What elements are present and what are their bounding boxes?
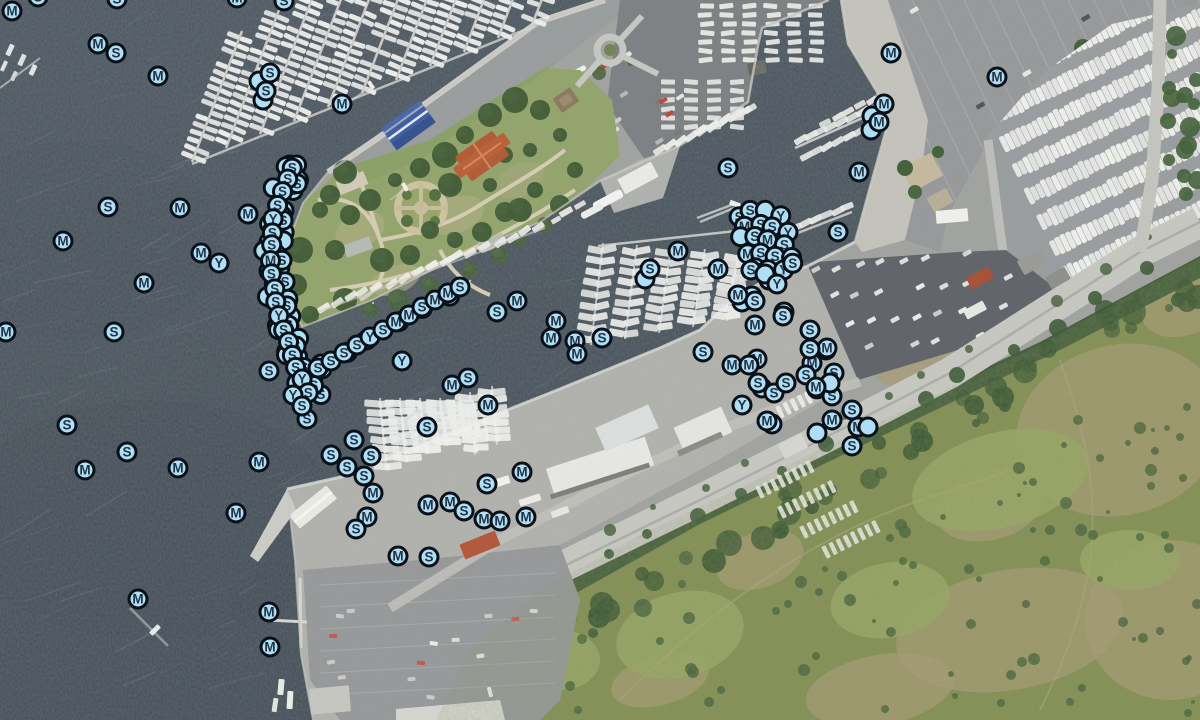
svg-text:M: M (444, 495, 455, 510)
svg-text:S: S (805, 323, 814, 338)
svg-text:M: M (138, 276, 149, 291)
svg-text:S: S (847, 403, 856, 418)
svg-text:S: S (112, 0, 121, 7)
svg-text:M: M (446, 378, 457, 393)
svg-text:M: M (826, 413, 837, 428)
svg-text:M: M (0, 325, 11, 340)
svg-text:Y: Y (772, 277, 781, 292)
svg-text:Y: Y (214, 256, 223, 271)
svg-text:S: S (750, 294, 759, 309)
svg-text:S: S (698, 345, 707, 360)
svg-text:S: S (723, 161, 732, 176)
svg-text:M: M (57, 234, 68, 249)
svg-text:S: S (297, 399, 306, 414)
svg-text:S: S (261, 84, 270, 99)
svg-text:S: S (781, 376, 790, 391)
svg-text:S: S (459, 504, 468, 519)
svg-text:M: M (520, 510, 531, 525)
svg-text:S: S (342, 460, 351, 475)
svg-text:S: S (847, 439, 856, 454)
svg-text:M: M (195, 246, 206, 261)
svg-text:S: S (33, 0, 42, 5)
svg-text:M: M (853, 165, 864, 180)
svg-text:M: M (263, 605, 274, 620)
svg-text:M: M (726, 358, 737, 373)
svg-text:M: M (264, 640, 275, 655)
svg-text:S: S (264, 364, 273, 379)
svg-text:M: M (511, 294, 522, 309)
svg-text:S: S (463, 371, 472, 386)
svg-text:M: M (550, 314, 561, 329)
svg-text:M: M (991, 70, 1002, 85)
svg-text:S: S (122, 445, 131, 460)
svg-text:S: S (351, 522, 360, 537)
svg-text:Y: Y (737, 398, 746, 413)
svg-text:S: S (753, 376, 762, 391)
svg-text:M: M (478, 512, 489, 527)
svg-text:M: M (132, 592, 143, 607)
svg-text:M: M (571, 347, 582, 362)
svg-text:M: M (494, 514, 505, 529)
svg-text:S: S (349, 433, 358, 448)
svg-text:M: M (545, 331, 556, 346)
svg-text:M: M (230, 506, 241, 521)
svg-text:M: M (336, 97, 347, 112)
svg-text:S: S (111, 46, 120, 61)
svg-text:M: M (732, 288, 743, 303)
svg-text:M: M (92, 37, 103, 52)
svg-text:M: M (6, 4, 17, 19)
svg-text:S: S (422, 420, 431, 435)
svg-text:S: S (746, 203, 755, 218)
svg-text:S: S (597, 331, 606, 346)
svg-text:S: S (109, 325, 118, 340)
svg-text:S: S (455, 280, 464, 295)
svg-text:M: M (79, 463, 90, 478)
svg-text:M: M (885, 46, 896, 61)
svg-text:M: M (821, 341, 832, 356)
svg-text:M: M (749, 318, 760, 333)
svg-text:Y: Y (397, 354, 406, 369)
svg-text:S: S (805, 342, 814, 357)
svg-text:S: S (746, 263, 755, 278)
svg-text:M: M (878, 97, 889, 112)
svg-text:M: M (242, 207, 253, 222)
svg-text:S: S (424, 550, 433, 565)
svg-text:M: M (873, 115, 884, 130)
svg-text:S: S (778, 309, 787, 324)
svg-text:M: M (516, 465, 527, 480)
svg-text:S: S (645, 262, 654, 277)
svg-text:M: M (810, 380, 821, 395)
svg-text:S: S (492, 305, 501, 320)
svg-text:M: M (172, 461, 183, 476)
svg-text:M: M (231, 0, 242, 6)
svg-text:S: S (265, 66, 274, 81)
svg-text:S: S (103, 200, 112, 215)
svg-text:M: M (392, 549, 403, 564)
svg-text:S: S (359, 469, 368, 484)
svg-text:S: S (62, 418, 71, 433)
svg-text:S: S (279, 0, 288, 9)
svg-text:M: M (367, 486, 378, 501)
svg-text:S: S (482, 477, 491, 492)
svg-text:M: M (152, 69, 163, 84)
svg-text:S: S (788, 256, 797, 271)
svg-text:M: M (761, 414, 772, 429)
svg-text:M: M (253, 455, 264, 470)
svg-text:M: M (712, 262, 723, 277)
svg-text:M: M (174, 201, 185, 216)
svg-text:S: S (833, 225, 842, 240)
svg-text:M: M (672, 244, 683, 259)
svg-text:S: S (366, 449, 375, 464)
svg-text:S: S (326, 448, 335, 463)
svg-text:M: M (422, 498, 433, 513)
svg-text:M: M (743, 358, 754, 373)
svg-text:M: M (482, 398, 493, 413)
